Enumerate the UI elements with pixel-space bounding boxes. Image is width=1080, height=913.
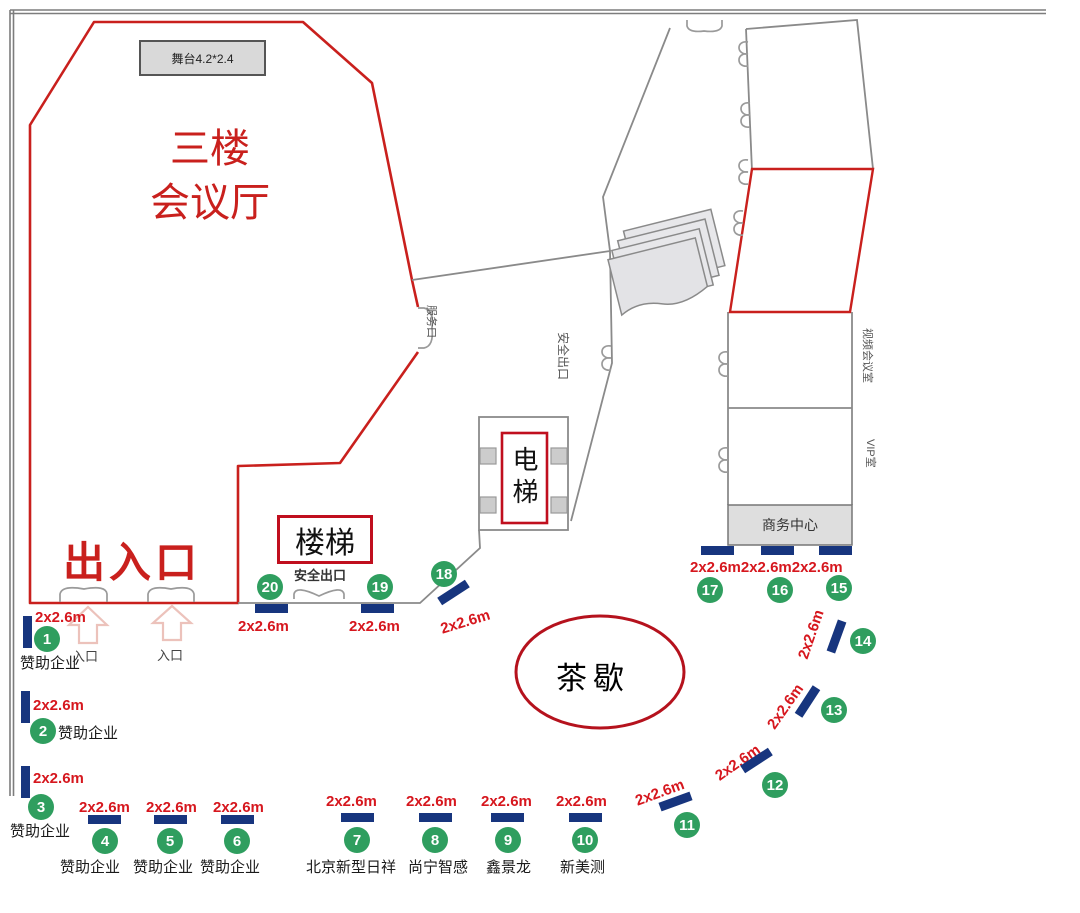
booth-2-size: 2x2.6m — [33, 697, 84, 714]
booth-6-bar — [221, 815, 254, 824]
booth-9-number: 9 — [495, 827, 521, 853]
booth-1-company: 赞助企业 — [20, 652, 80, 673]
floor-plan: 舞台4.2*2.4 三楼 会议厅 出入口 入口 入口 楼梯 安全出口 服务口 安… — [0, 0, 1080, 913]
booth-7-size: 2x2.6m — [326, 793, 377, 810]
stairs-box: 楼梯 — [277, 515, 373, 564]
booth-5-size: 2x2.6m — [146, 799, 197, 816]
booth-20-bar — [255, 604, 288, 613]
exit-label: 出入口 — [63, 529, 201, 590]
hall-title-line1: 三楼 — [115, 122, 305, 176]
booth-7-number: 7 — [344, 827, 370, 853]
booth-17-bar — [701, 546, 734, 555]
booth-6-company: 赞助企业 — [200, 856, 260, 877]
vip-room-label: VIP室 — [863, 439, 879, 483]
stage-label: 舞台4.2*2.4 — [140, 41, 265, 75]
booth-3-number: 3 — [28, 794, 54, 820]
paper-stack — [602, 209, 731, 317]
stairs-safety-exit-label: 安全出口 — [294, 565, 346, 584]
booth-2-bar — [21, 691, 30, 723]
booth-15-number: 15 — [826, 575, 852, 601]
booth-11-number: 11 — [674, 812, 700, 838]
booth-15-size: 2x2.6m — [792, 559, 843, 576]
booth-8-number: 8 — [422, 827, 448, 853]
entrance-arrows — [69, 606, 191, 643]
booth-15-bar — [819, 546, 852, 555]
booth-19-bar — [361, 604, 394, 613]
booth-5-bar — [154, 815, 187, 824]
booth-3-bar — [21, 766, 30, 798]
booth-4-company: 赞助企业 — [60, 856, 120, 877]
red-room — [730, 169, 873, 312]
booth-17-number: 17 — [697, 577, 723, 603]
hall-title: 三楼 会议厅 — [115, 122, 305, 230]
booth-2-number: 2 — [30, 718, 56, 744]
booth-4-number: 4 — [92, 828, 118, 854]
tea-break-label: 茶歇 — [556, 653, 630, 698]
booth-9-bar — [491, 813, 524, 822]
booth-20-size: 2x2.6m — [238, 618, 289, 635]
booth-7-company: 北京新型日祥 — [306, 856, 396, 877]
booth-19-number: 19 — [367, 574, 393, 600]
business-center-label: 商务中心 — [728, 505, 852, 545]
corridor-safety-exit-label: 安全出口 — [555, 332, 572, 392]
booth-17-size: 2x2.6m — [690, 559, 741, 576]
elevator-label: 电梯 — [502, 438, 547, 518]
booth-5-number: 5 — [157, 828, 183, 854]
booth-1-bar — [23, 616, 32, 648]
booths-15-17-sizes: 2x2.6m 2x2.6m 2x2.6m — [690, 559, 843, 576]
booth-10-bar — [569, 813, 602, 822]
booth-20-number: 20 — [257, 574, 283, 600]
meeting-room-label: 视频会议室 — [860, 328, 876, 400]
booth-7-bar — [341, 813, 374, 822]
service-door-label: 服务口 — [424, 305, 440, 353]
booth-10-company: 新美测 — [560, 856, 605, 877]
booth-4-size: 2x2.6m — [79, 799, 130, 816]
booth-6-size: 2x2.6m — [213, 799, 264, 816]
booth-1-size: 2x2.6m — [35, 609, 86, 626]
booth-4-bar — [88, 815, 121, 824]
booth-8-size: 2x2.6m — [406, 793, 457, 810]
booth-5-company: 赞助企业 — [133, 856, 193, 877]
booth-8-bar — [419, 813, 452, 822]
booth-9-size: 2x2.6m — [481, 793, 532, 810]
entrance-label-2: 入口 — [157, 645, 183, 664]
booth-1-number: 1 — [34, 626, 60, 652]
booth-13-number: 13 — [821, 697, 847, 723]
booth-3-size: 2x2.6m — [33, 770, 84, 787]
booth-16-size: 2x2.6m — [741, 559, 792, 576]
booth-3-company: 赞助企业 — [10, 820, 70, 841]
booth-18-number: 18 — [431, 561, 457, 587]
booth-6-number: 6 — [224, 828, 250, 854]
booth-2-company: 赞助企业 — [58, 722, 118, 743]
hall-title-line2: 会议厅 — [115, 176, 305, 230]
stairs-label: 楼梯 — [295, 518, 355, 562]
booth-10-number: 10 — [572, 827, 598, 853]
booth-8-company: 尚宁智感 — [408, 856, 468, 877]
booth-16-bar — [761, 546, 794, 555]
booth-14-number: 14 — [850, 628, 876, 654]
booth-10-size: 2x2.6m — [556, 793, 607, 810]
door-symbols — [60, 20, 750, 602]
booth-9-company: 鑫景龙 — [486, 856, 531, 877]
booth-12-number: 12 — [762, 772, 788, 798]
booth-19-size: 2x2.6m — [349, 618, 400, 635]
booth-16-number: 16 — [767, 577, 793, 603]
